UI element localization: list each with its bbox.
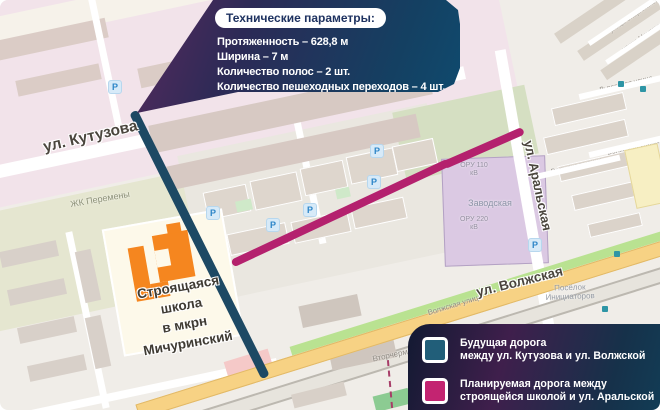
parking-icon: P — [206, 206, 220, 220]
transport-stop-icon — [640, 86, 646, 92]
transport-stop-icon — [614, 251, 620, 257]
panel-title-badge: Технические параметры: — [215, 8, 386, 28]
legend-line: Планируемая дорога между — [460, 378, 654, 391]
building — [571, 181, 637, 211]
transport-stop-icon — [602, 306, 608, 312]
parking-icon: P — [303, 203, 317, 217]
param-lanes: Количество полос – 2 шт. — [217, 65, 445, 80]
parking-icon: P — [528, 238, 542, 252]
oru-line: кВ — [452, 170, 496, 178]
transport-stop-icon — [618, 81, 624, 87]
param-width: Ширина – 7 м — [217, 50, 445, 65]
building — [27, 354, 87, 382]
school-building-notch — [154, 248, 171, 267]
technical-parameters-list: Протяженность – 628,8 м Ширина – 7 м Кол… — [217, 35, 445, 95]
legend-item-future-road: Будущая дорога между ул. Кутузова и ул. … — [422, 337, 645, 363]
parking-icon: P — [266, 218, 280, 232]
legend-line: Будущая дорога — [460, 337, 645, 350]
parking-icon: P — [108, 80, 122, 94]
oru-line: ОРУ 220 — [452, 216, 496, 224]
parking-icon: P — [370, 144, 384, 158]
legend-panel: Будущая дорога между ул. Кутузова и ул. … — [408, 324, 660, 410]
zavodskaya-label: Заводская — [455, 198, 525, 208]
parking-icon: P — [367, 175, 381, 189]
poselok-initsiatorov-label: Посёлок Инициаторов — [538, 282, 603, 302]
building — [587, 212, 643, 238]
building — [624, 143, 660, 209]
legend-item-text: Будущая дорога между ул. Кутузова и ул. … — [460, 337, 645, 363]
legend-item-planned-road: Планируемая дорога между строящейся школ… — [422, 378, 654, 404]
param-length: Протяженность – 628,8 м — [217, 35, 445, 50]
map-infographic: P P P P P P P ЖК Перемены Волжская улица… — [0, 0, 660, 410]
building — [298, 294, 361, 328]
legend-line: между ул. Кутузова и ул. Волжской — [460, 350, 645, 363]
legend-item-text: Планируемая дорога между строящейся школ… — [460, 378, 654, 404]
future-road-swatch — [422, 337, 448, 363]
oru-line: кВ — [452, 224, 496, 232]
planned-road-swatch — [422, 378, 448, 404]
oru-220-label: ОРУ 220 кВ — [452, 216, 496, 232]
oru-110-label: ОРУ 110 кВ — [452, 162, 496, 178]
legend-line: строящейся школой и ул. Аральской — [460, 391, 654, 404]
